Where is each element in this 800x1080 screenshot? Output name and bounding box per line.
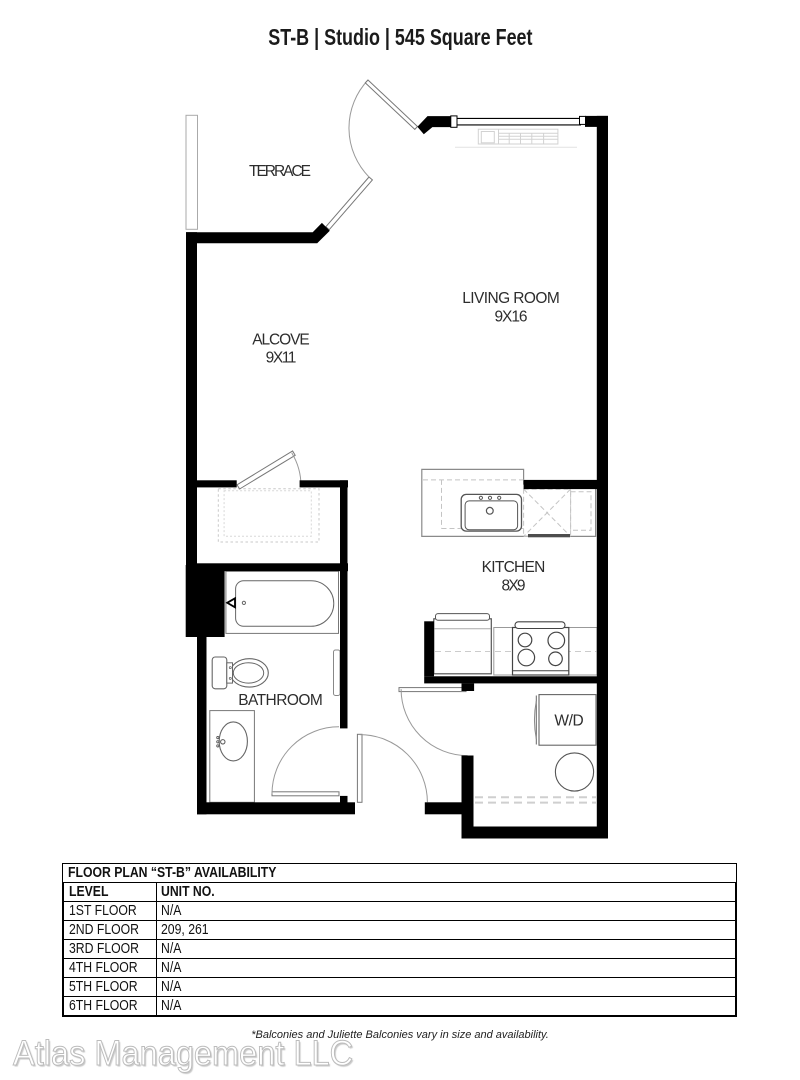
svg-text:ALCOVE: ALCOVE (252, 332, 310, 349)
svg-text:9X16: 9X16 (495, 309, 528, 326)
svg-text:KITCHEN: KITCHEN (482, 559, 546, 576)
svg-text:9X11: 9X11 (266, 350, 297, 367)
svg-text:LIVING ROOM: LIVING ROOM (462, 290, 560, 307)
svg-text:BATHROOM: BATHROOM (238, 692, 323, 709)
svg-text:W/D: W/D (554, 713, 583, 730)
svg-text:8X9: 8X9 (501, 578, 525, 595)
svg-text:TERRACE: TERRACE (249, 163, 311, 180)
